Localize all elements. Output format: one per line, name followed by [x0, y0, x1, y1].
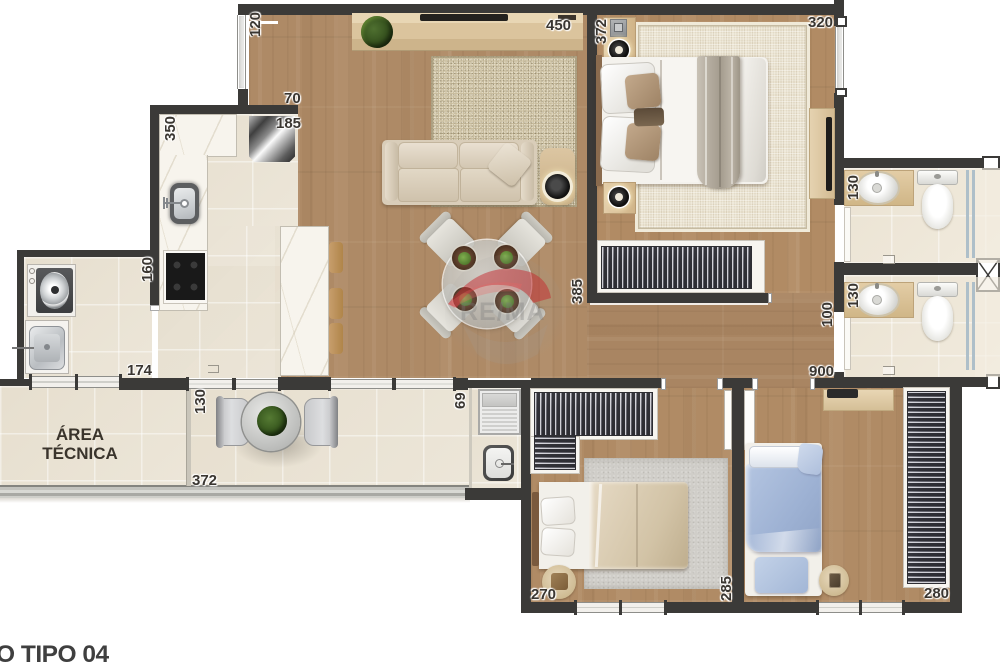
- svg-text:RE/MA: RE/MA: [460, 298, 546, 326]
